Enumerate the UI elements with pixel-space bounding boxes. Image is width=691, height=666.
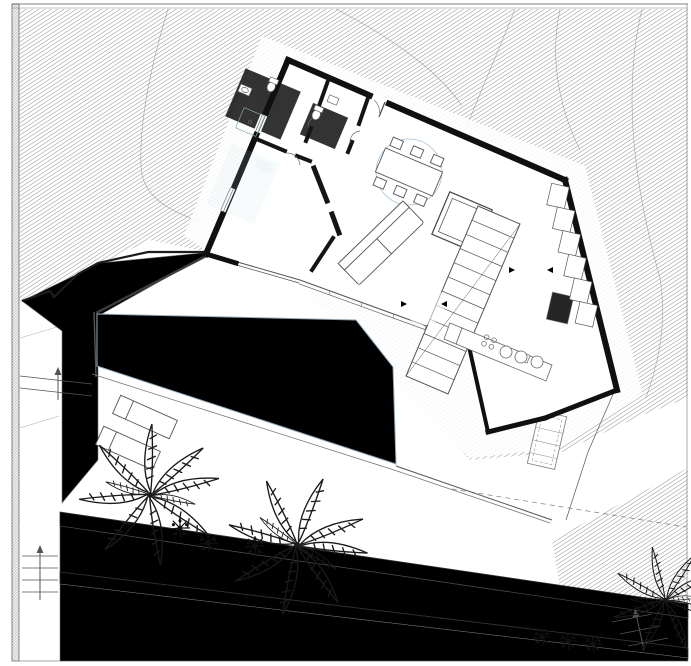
stairs-bottom-left [22,545,58,600]
up-arrow [37,545,44,553]
pool [97,314,396,464]
up-arrow [55,367,62,375]
sun-lounger [113,395,178,438]
floor-plan-sheet [0,0,691,666]
floor-plan-canvas [0,0,691,666]
terrain-hatch-southeast [552,468,688,604]
pool-water [97,314,396,464]
